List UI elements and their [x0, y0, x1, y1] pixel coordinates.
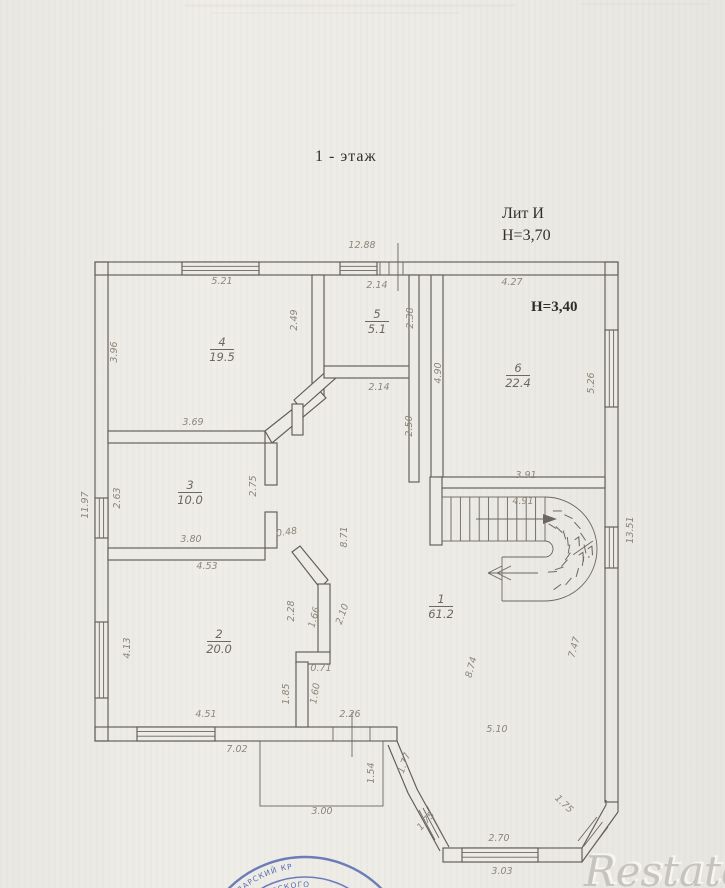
dimension-label: 1.75 — [552, 793, 575, 816]
room-number: 6 — [514, 361, 521, 375]
dimension-label: 2.28 — [286, 600, 297, 621]
dimension-label: 4.13 — [122, 637, 133, 658]
dimension-label: 2.14 — [368, 382, 389, 393]
dimension-label: 4.53 — [196, 561, 217, 572]
dimension-label: 2.50 — [404, 415, 415, 436]
floor-plan-drawing: 1 - этаж Лит И Н=3,70 Н=3,40 — [0, 0, 725, 888]
dimension-label: 3.91 — [515, 470, 536, 481]
dimension-label: 4.91 — [512, 496, 533, 507]
stair-hatch-dash — [554, 584, 561, 589]
dimension-label: 12.88 — [348, 240, 375, 251]
scan-artifacts — [185, 3, 710, 14]
room-label-3: 310.0 — [177, 478, 203, 507]
dimension-label: 4.90 — [433, 362, 444, 383]
stair-hatch-dash — [556, 526, 562, 532]
room-label-6: 622.4 — [505, 361, 531, 390]
dimension-label: 3.00 — [311, 806, 332, 817]
stair-hatch-dash — [563, 531, 565, 540]
dimension-label: 2.49 — [289, 309, 300, 330]
room-area: 5.1 — [368, 322, 386, 336]
up-arrow-icon — [543, 514, 557, 524]
stair-hatch-dash — [576, 568, 578, 577]
dimension-label: 2.38 — [405, 307, 416, 328]
dimension-label: 4.51 — [195, 709, 216, 720]
blue-stamp: КРАСНОДАРСКИЙ КР КРАСНОДАРСКОГО — [197, 857, 413, 888]
down-arrow-icon — [488, 566, 538, 580]
room-height-label: Н=3,40 — [531, 299, 577, 315]
dimension-label: 2.10 — [334, 602, 352, 626]
dimension-label: 2.70 — [488, 833, 509, 844]
building-height-label: Н=3,70 — [502, 227, 551, 244]
dimension-label: 8.71 — [339, 526, 350, 547]
room-label-2: 220.0 — [206, 627, 232, 656]
stair-hatch-dash — [561, 560, 567, 567]
dimension-label: 13.51 — [625, 516, 636, 543]
stair-hatch-dash — [549, 524, 557, 529]
stair-hatch-dash — [566, 578, 572, 585]
room-area: 61.2 — [428, 607, 454, 621]
dimension-label: 0.71 — [310, 663, 331, 674]
room-area: 20.0 — [206, 642, 232, 656]
stair-hatch-dash — [567, 537, 568, 546]
room-label-1: 161.2 — [428, 592, 454, 621]
dimension-label: 1.77 — [396, 751, 414, 775]
watermark-text: Restate — [583, 847, 725, 888]
staircase — [442, 497, 597, 601]
dimension-label: 8.74 — [464, 656, 480, 679]
liter-label: Лит И — [502, 205, 544, 222]
stair-hatch-dash — [548, 572, 557, 573]
dimension-label: 2.26 — [339, 709, 360, 720]
restate-watermark: Restate Restate — [583, 845, 725, 888]
windows — [95, 262, 618, 862]
dimension-label: 2.75 — [248, 475, 259, 496]
room-area: 19.5 — [209, 350, 235, 364]
dimension-label: 11.97 — [80, 491, 91, 518]
room-number: 4 — [218, 335, 225, 349]
dimension-label: 5.21 — [211, 276, 232, 287]
dimension-label: 3.80 — [180, 534, 201, 545]
room-area: 10.0 — [177, 493, 203, 507]
room-label-5: 55.1 — [365, 307, 389, 336]
dimension-label: 1.85 — [281, 683, 292, 704]
stair-hatch-dash — [564, 515, 572, 519]
room-number: 5 — [373, 307, 380, 321]
room-number: 3 — [186, 478, 193, 492]
dimension-label: 1.60 — [308, 682, 323, 705]
room-number: 1 — [437, 592, 444, 606]
dimension-label: 3.69 — [182, 417, 203, 428]
dimension-label: 2.63 — [112, 487, 123, 508]
stair-hatch-dash — [555, 567, 564, 570]
dimension-label: 3.03 — [491, 866, 512, 877]
scanned-floor-plan-page: 1 - этаж Лит И Н=3,70 Н=3,40 — [0, 0, 725, 888]
room-label-4: 419.5 — [209, 335, 235, 364]
room-area: 22.4 — [505, 376, 531, 390]
dimension-label: 3.96 — [109, 341, 120, 362]
room-number: 2 — [215, 627, 222, 641]
dimension-label: 4.27 — [501, 277, 522, 288]
stair-hatch-dash — [574, 522, 580, 529]
dimension-label: 2.14 — [366, 280, 387, 291]
floor-title: 1 - этаж — [315, 148, 377, 165]
dimension-label: 7.47 — [567, 636, 583, 659]
titles: 1 - этаж Лит И Н=3,70 Н=3,40 — [315, 148, 577, 315]
dimension-label: 7.02 — [226, 744, 247, 755]
dimension-label: 5.10 — [486, 724, 507, 735]
outer-walls — [95, 262, 618, 862]
stair-hatch-dash — [565, 553, 570, 560]
dimension-label: 1.54 — [366, 762, 377, 783]
dimension-label: 0.48 — [275, 526, 297, 540]
dimension-label: 5.26 — [586, 372, 597, 393]
